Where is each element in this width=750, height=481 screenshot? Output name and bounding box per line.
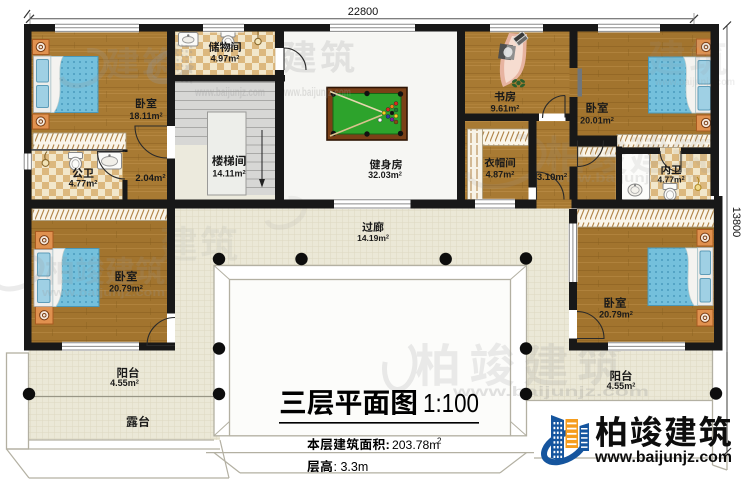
svg-text:4.55m2: 4.55m2 bbox=[607, 381, 636, 391]
svg-text:www.baijunjz.com: www.baijunjz.com bbox=[280, 87, 351, 99]
svg-text:14.11m2: 14.11m2 bbox=[212, 169, 245, 179]
svg-text:32.03m2: 32.03m2 bbox=[368, 170, 402, 180]
svg-text:www.baijunjz.com: www.baijunjz.com bbox=[594, 449, 732, 466]
svg-text:4.55m2: 4.55m2 bbox=[110, 378, 139, 388]
svg-text:: 3.3m: : 3.3m bbox=[334, 460, 369, 474]
svg-text:4.77m2: 4.77m2 bbox=[69, 179, 98, 189]
svg-text:4.77m2: 4.77m2 bbox=[657, 175, 684, 185]
svg-text:2: 2 bbox=[437, 437, 442, 446]
svg-text:4.87m2: 4.87m2 bbox=[486, 170, 515, 180]
svg-text::: : bbox=[386, 437, 390, 452]
svg-text:13800: 13800 bbox=[730, 207, 742, 238]
svg-text:2.04m2: 2.04m2 bbox=[135, 173, 166, 184]
svg-text:1:100: 1:100 bbox=[423, 388, 479, 418]
svg-text:9.61m2: 9.61m2 bbox=[491, 104, 520, 114]
svg-text:203.78m: 203.78m bbox=[392, 438, 439, 452]
svg-text:www.baijunjz.com: www.baijunjz.com bbox=[654, 77, 735, 88]
svg-text:20.79m2: 20.79m2 bbox=[109, 284, 143, 294]
svg-text:3.10m2: 3.10m2 bbox=[537, 172, 568, 183]
svg-text:20.01m2: 20.01m2 bbox=[580, 116, 614, 126]
svg-text:18.11m2: 18.11m2 bbox=[129, 111, 162, 121]
svg-text:22800: 22800 bbox=[348, 6, 379, 18]
svg-text:www.baijunjz.com: www.baijunjz.com bbox=[41, 287, 166, 299]
svg-text:20.79m2: 20.79m2 bbox=[599, 310, 633, 320]
svg-text:14.19m2: 14.19m2 bbox=[357, 233, 389, 243]
svg-text:4.97m2: 4.97m2 bbox=[211, 54, 240, 64]
svg-text:www.baijunjz.com: www.baijunjz.com bbox=[194, 87, 265, 99]
